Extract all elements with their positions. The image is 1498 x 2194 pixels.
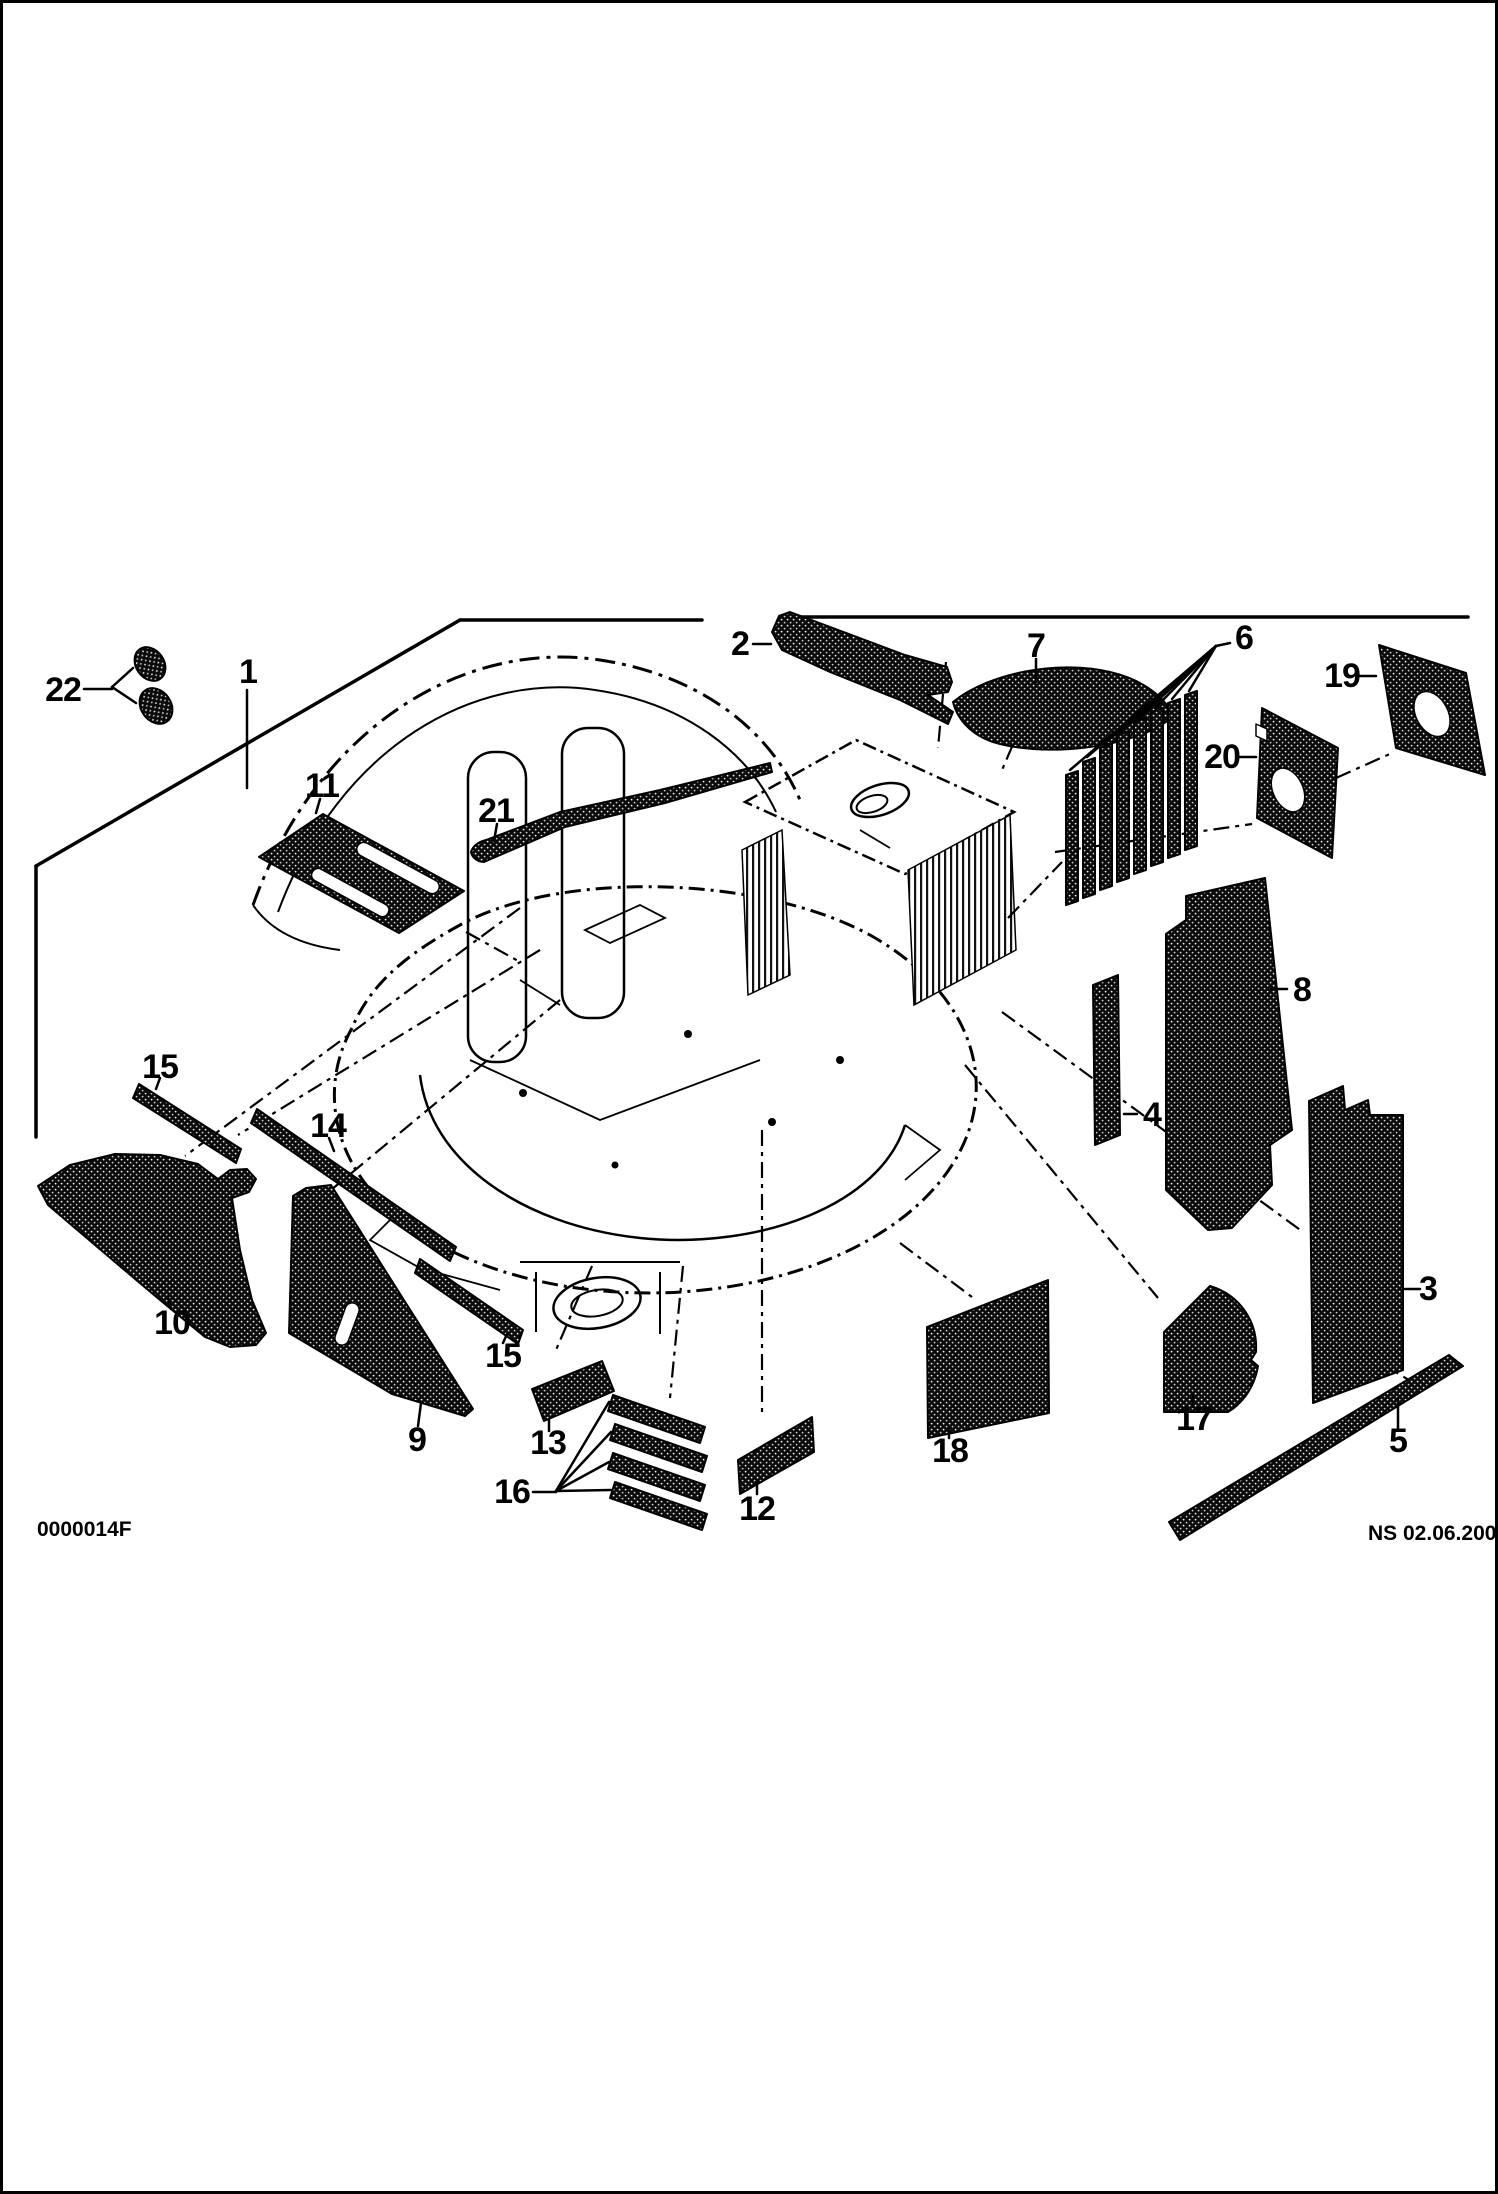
- part-10-shape: [38, 1154, 266, 1347]
- callout-18: 18: [932, 1434, 968, 1468]
- callout-1: 1: [239, 655, 257, 689]
- callout-8: 8: [1293, 973, 1311, 1007]
- callout-12: 12: [739, 1492, 775, 1526]
- part-18-shape: [927, 1280, 1049, 1438]
- part-20-shape: [1256, 708, 1338, 858]
- leader-22-fork: [84, 668, 136, 703]
- part-8-shape: [1166, 878, 1292, 1230]
- part-19-shape: [1379, 645, 1485, 775]
- part-11-shape: [259, 814, 464, 933]
- callout-17: 17: [1176, 1402, 1212, 1436]
- callout-4: 4: [1143, 1098, 1161, 1132]
- part-4-shape: [1093, 975, 1120, 1145]
- callout-7: 7: [1027, 629, 1045, 663]
- revision-note: NS 02.06.2001: [1368, 1522, 1498, 1546]
- part-2-shape: [772, 612, 953, 724]
- callout-20: 20: [1204, 740, 1240, 774]
- callout-15-upper: 15: [142, 1050, 178, 1084]
- callout-21: 21: [478, 794, 514, 828]
- part-9-shape: [289, 1185, 473, 1416]
- part-12-shape: [738, 1417, 814, 1494]
- callout-5: 5: [1389, 1424, 1407, 1458]
- callout-16: 16: [494, 1475, 530, 1509]
- machine-drawing: [253, 657, 1016, 1335]
- callout-3: 3: [1419, 1272, 1437, 1306]
- callout-11: 11: [305, 769, 339, 803]
- callout-15-lower: 15: [485, 1339, 521, 1373]
- part-16-shape: [608, 1395, 707, 1530]
- callout-2: 2: [731, 627, 749, 661]
- callout-19: 19: [1324, 659, 1360, 693]
- callout-10: 10: [154, 1306, 190, 1340]
- callout-6: 6: [1235, 621, 1253, 655]
- callout-13: 13: [530, 1426, 566, 1460]
- part-22-shape: [128, 641, 179, 730]
- diagram-canvas: [0, 0, 1498, 2194]
- part-21-shape: [471, 763, 772, 862]
- parts-diagram-page: 1 2 3 4 5 6 7 8 9 10 11 12 13 14 15 15 1…: [0, 0, 1498, 2194]
- callout-9: 9: [408, 1423, 426, 1457]
- part-15-upper-shape: [133, 1084, 241, 1163]
- part-17-shape: [1164, 1286, 1258, 1412]
- callout-14: 14: [310, 1109, 346, 1143]
- part-15-lower-shape: [415, 1259, 523, 1344]
- drawing-number: 0000014F: [37, 1518, 132, 1542]
- part-3-shape: [1309, 1086, 1403, 1403]
- callout-22: 22: [45, 673, 81, 707]
